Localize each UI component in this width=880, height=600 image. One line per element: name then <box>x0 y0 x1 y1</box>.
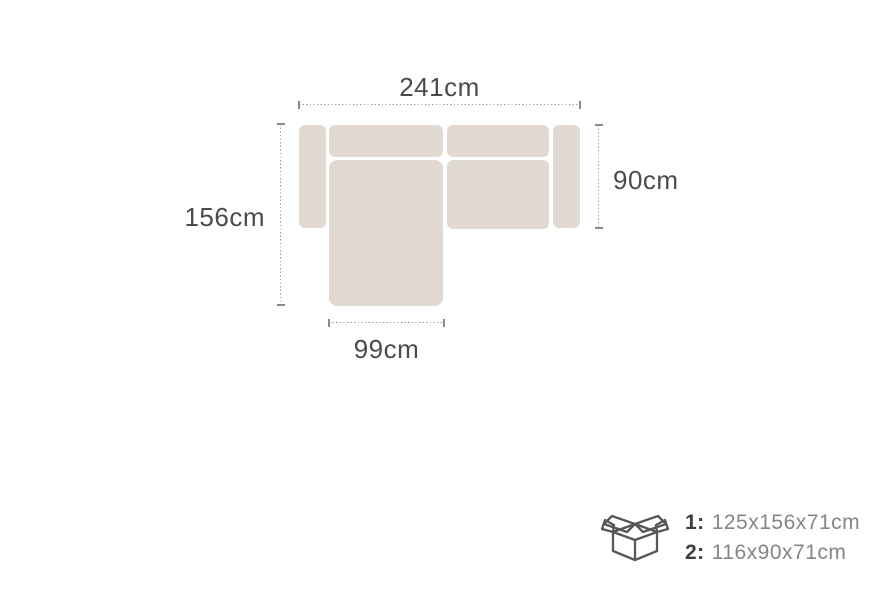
dim-tick <box>443 319 445 327</box>
package-item-2: 2:116x90x71cm <box>685 538 860 568</box>
sofa-left-armrest <box>299 125 326 228</box>
package-item-2-number: 2: <box>685 541 705 564</box>
dim-tick <box>579 101 581 109</box>
package-item-1-dimensions: 125x156x71cm <box>712 511 860 534</box>
width-dimension-label: 241cm <box>299 73 580 102</box>
seat-depth-dimension-line <box>598 125 600 229</box>
depth-dimension-line <box>280 124 282 306</box>
chaise-width-dimension-label: 99cm <box>329 335 444 364</box>
dim-tick <box>595 124 603 126</box>
package-dimension-list: 1:125x156x71cm 2:116x90x71cm <box>685 508 860 568</box>
box-icon <box>601 508 669 568</box>
package-item-1: 1:125x156x71cm <box>685 508 860 538</box>
sofa-chaise-seat <box>329 160 443 306</box>
dim-tick <box>328 319 330 327</box>
sofa-back-cushion-right <box>447 125 549 157</box>
dim-tick <box>298 101 300 109</box>
sofa-dimension-diagram: 241cm 156cm 90cm 99cm <box>0 0 880 600</box>
package-item-2-dimensions: 116x90x71cm <box>712 541 847 564</box>
dim-tick <box>595 227 603 229</box>
chaise-width-dimension-line <box>329 322 444 324</box>
width-dimension-line <box>299 104 580 106</box>
depth-dimension-label: 156cm <box>145 203 265 232</box>
packaging-info: 1:125x156x71cm 2:116x90x71cm <box>601 508 860 568</box>
dim-tick <box>277 123 285 125</box>
sofa-right-seat <box>447 160 549 229</box>
package-item-1-number: 1: <box>685 511 705 534</box>
sofa-right-armrest <box>553 125 580 228</box>
seat-depth-dimension-label: 90cm <box>613 166 679 195</box>
sofa-back-cushion-left <box>329 125 443 157</box>
dim-tick <box>277 304 285 306</box>
